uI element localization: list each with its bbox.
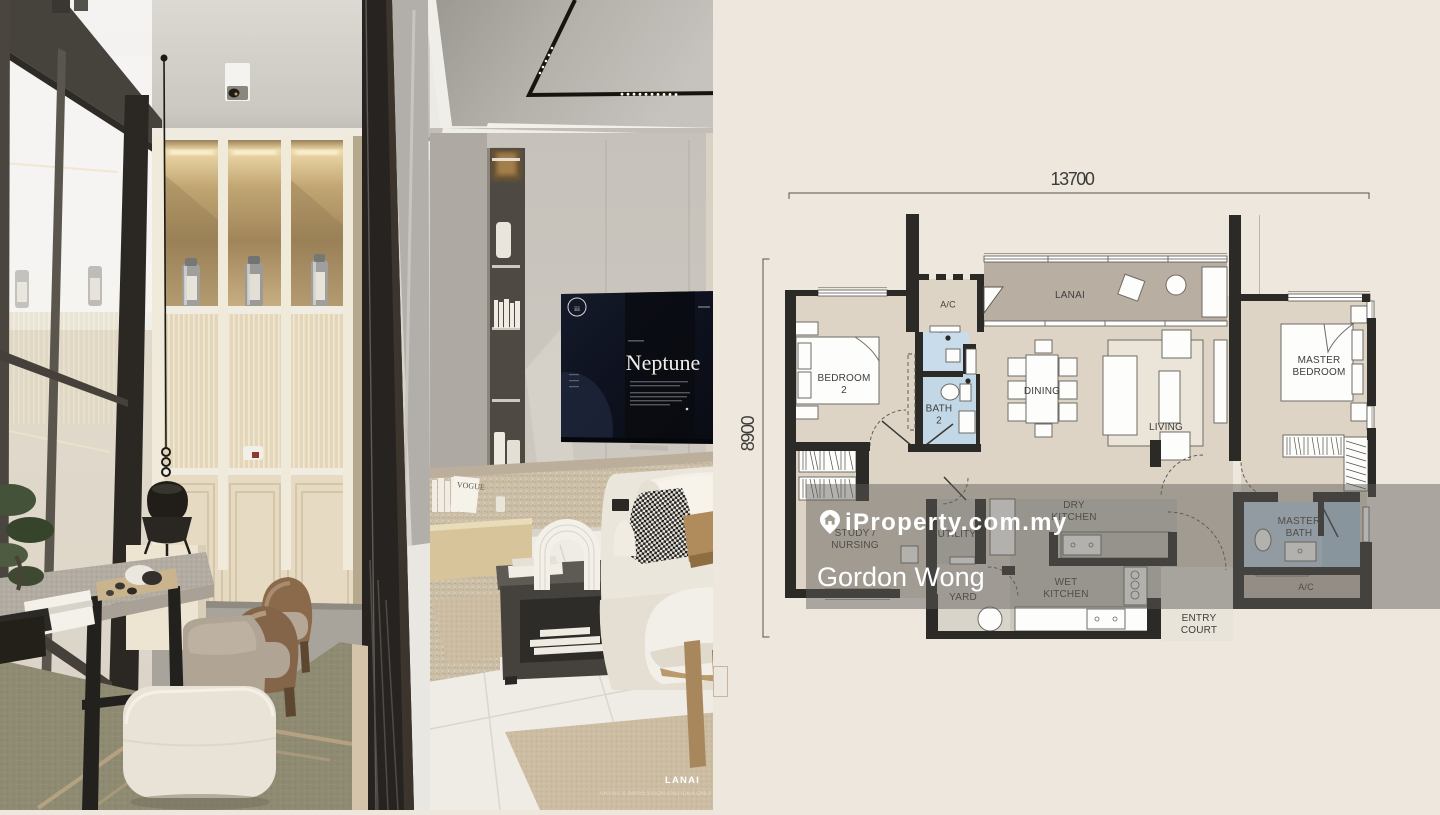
- svg-text:13700: 13700: [1050, 169, 1094, 189]
- svg-text:BEDROOM: BEDROOM: [817, 373, 870, 384]
- svg-text:2: 2: [841, 385, 847, 396]
- svg-text:LIVING: LIVING: [1149, 422, 1183, 433]
- svg-text:DINING: DINING: [1024, 386, 1060, 397]
- svg-text:ENTRY: ENTRY: [1182, 613, 1217, 624]
- svg-text:ARTIST'S IMPRESSION AND IDEA O: ARTIST'S IMPRESSION AND IDEA ONLY: [599, 791, 712, 797]
- svg-text:COURT: COURT: [1181, 625, 1217, 636]
- svg-text:2: 2: [936, 416, 942, 427]
- svg-text:iii: iii: [574, 305, 580, 313]
- svg-text:BEDROOM: BEDROOM: [1292, 367, 1345, 378]
- svg-text:MASTER: MASTER: [1298, 355, 1341, 366]
- svg-text:BATH: BATH: [926, 404, 953, 415]
- svg-text:Neptune: Neptune: [626, 350, 701, 375]
- svg-text:A/C: A/C: [940, 300, 956, 310]
- svg-text:LANAI: LANAI: [1055, 290, 1085, 301]
- svg-text:8900: 8900: [738, 415, 758, 451]
- svg-text:LANAI: LANAI: [665, 775, 700, 786]
